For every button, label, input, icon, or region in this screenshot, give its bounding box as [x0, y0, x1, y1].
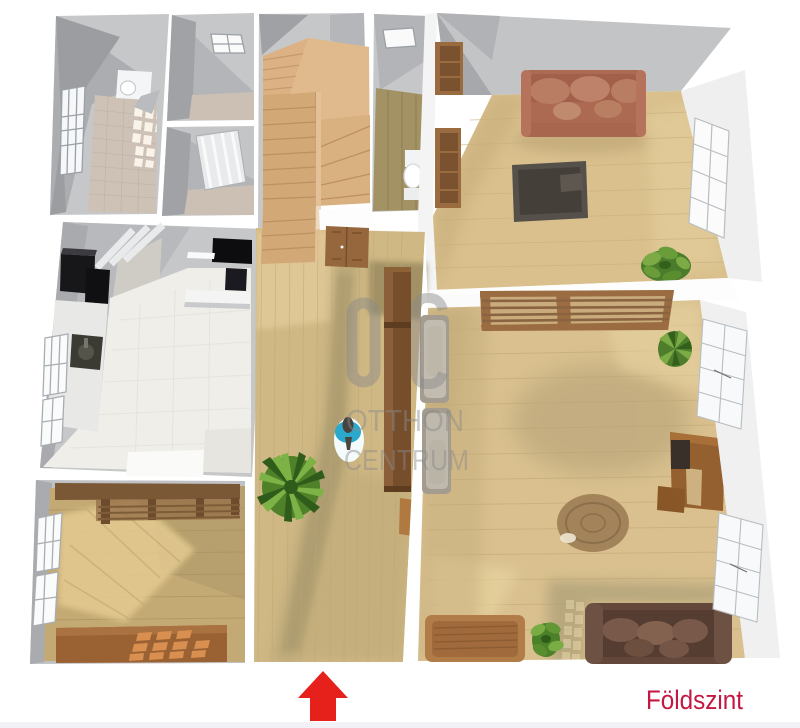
svg-text:CENTRUM: CENTRUM	[344, 445, 469, 477]
svg-text:OTTHON: OTTHON	[346, 403, 464, 438]
svg-text:Földszint: Földszint	[646, 685, 744, 715]
